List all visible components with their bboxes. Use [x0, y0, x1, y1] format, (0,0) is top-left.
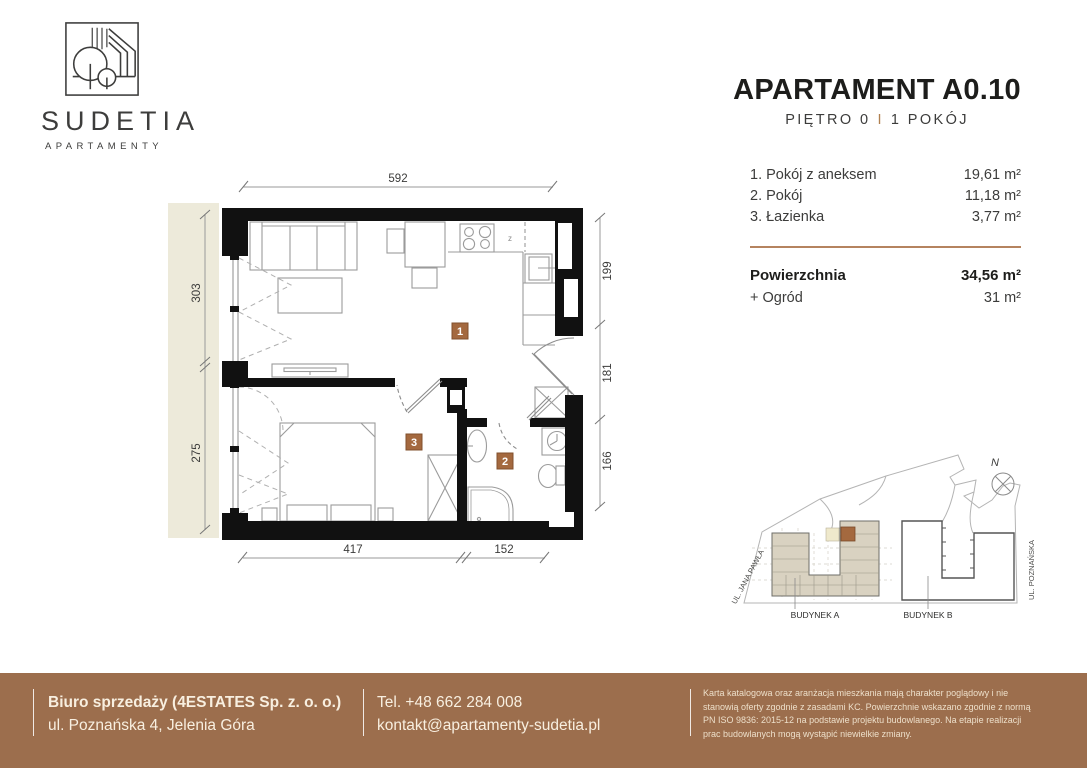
apartment-header: APARTAMENT A0.10 PIĘTRO 0I1 POKÓJ — [733, 74, 1021, 128]
sales-office-name: Biuro sprzedaży (4ESTATES Sp. z. o. o.) — [48, 691, 341, 714]
floor-label: PIĘTRO 0 — [785, 112, 870, 128]
dim-right-top: 199 — [602, 261, 614, 280]
garden-label: + Ogród — [750, 287, 803, 309]
dishwasher-mark: z — [508, 234, 512, 243]
garden-strip — [168, 203, 219, 538]
marker-bathroom: 2 — [502, 456, 508, 468]
catalog-page: SUDETIA APARTAMENTY APARTAMENT A0.10 PIĘ… — [0, 0, 1087, 768]
subtitle-separator: I — [870, 112, 890, 128]
sudetia-logo-icon — [63, 20, 141, 98]
room-area: 3,77 m² — [972, 207, 1021, 228]
hall-cabinet — [535, 387, 568, 418]
room-area: 19,61 m² — [964, 165, 1021, 186]
footer-bar: Biuro sprzedaży (4ESTATES Sp. z. o. o.) … — [0, 673, 1087, 768]
highlighted-unit — [841, 527, 855, 541]
footer-divider — [33, 689, 34, 736]
room-label: 3. Łazienka — [750, 207, 824, 228]
apartment-subtitle: PIĘTRO 0I1 POKÓJ — [733, 112, 1021, 128]
list-divider — [750, 246, 1021, 248]
bathroom-sink — [467, 430, 487, 462]
brand-tagline: APARTAMENTY — [36, 141, 168, 152]
footer-divider — [363, 689, 364, 736]
dining-table — [387, 222, 445, 288]
building-b-label: BUDYNEK B — [903, 610, 952, 620]
dim-top: 592 — [388, 173, 407, 185]
contact-block: Tel. +48 662 284 008 kontakt@apartamenty… — [377, 691, 600, 737]
room-row: 1. Pokój z aneksem 19,61 m² — [750, 165, 1021, 186]
toilet — [539, 463, 568, 488]
adjacent-unit — [826, 528, 839, 541]
building-a-label: BUDYNEK A — [791, 610, 840, 620]
marker-bedroom: 3 — [411, 437, 417, 449]
email-address: kontakt@apartamenty-sudetia.pl — [377, 714, 600, 737]
room-area: 11,18 m² — [965, 186, 1021, 207]
disclaimer-text: Karta katalogowa oraz aranżacja mieszkan… — [703, 687, 1037, 741]
bed — [262, 423, 393, 521]
phone-number: Tel. +48 662 284 008 — [377, 691, 600, 714]
dim-right-middle: 181 — [602, 363, 614, 382]
floor-plan: 592 303 275 199 181 166 417 152 — [150, 163, 670, 583]
furniture: z — [250, 208, 573, 528]
total-area-row: Powierzchnia 34,56 m² — [750, 265, 1021, 287]
street-poznanska-label: UL. POZNAŃSKA — [1027, 540, 1036, 600]
dim-left-top: 303 — [191, 283, 203, 302]
brand-name: SUDETIA — [36, 106, 168, 137]
room-label: 2. Pokój — [750, 186, 802, 207]
site-plan: BUDYNEK A BUDYNEK B UL. JANA PAWŁA UL. P… — [722, 428, 1070, 623]
dim-left-bottom: 275 — [191, 443, 203, 462]
apartment-title: APARTAMENT A0.10 — [733, 74, 1021, 107]
room-row: 3. Łazienka 3,77 m² — [750, 207, 1021, 228]
disclaimer-block: Karta katalogowa oraz aranżacja mieszkan… — [703, 687, 1037, 741]
total-area-label: Powierzchnia — [750, 265, 846, 287]
compass: N — [991, 457, 1014, 495]
sales-office-block: Biuro sprzedaży (4ESTATES Sp. z. o. o.) … — [48, 691, 341, 737]
dim-bottom-left: 417 — [343, 544, 362, 556]
entrance-door — [532, 338, 574, 395]
dim-bottom-right: 152 — [494, 544, 513, 556]
room-row: 2. Pokój 11,18 m² — [750, 186, 1021, 207]
bedroom-door — [397, 379, 442, 413]
building-a — [772, 521, 879, 596]
rooms-count-label: 1 POKÓJ — [891, 112, 969, 128]
garden-area-row: + Ogród 31 m² — [750, 287, 1021, 309]
street-jana-pawla-label: UL. JANA PAWŁA — [730, 548, 766, 605]
room-list: 1. Pokój z aneksem 19,61 m² 2. Pokój 11,… — [750, 165, 1021, 309]
marker-living: 1 — [457, 326, 463, 338]
brand-logo: SUDETIA APARTAMENTY — [36, 20, 168, 152]
sales-office-address: ul. Poznańska 4, Jelenia Góra — [48, 714, 341, 737]
wardrobe — [428, 455, 462, 521]
room-label: 1. Pokój z aneksem — [750, 165, 877, 186]
tv-board — [272, 364, 348, 377]
building-b — [902, 521, 1014, 600]
sofa — [250, 222, 357, 270]
footer-divider — [690, 689, 691, 736]
total-area-value: 34,56 m² — [961, 265, 1021, 287]
garden-value: 31 m² — [984, 287, 1021, 309]
compass-n-label: N — [991, 457, 999, 469]
dim-right-bottom: 166 — [602, 451, 614, 470]
